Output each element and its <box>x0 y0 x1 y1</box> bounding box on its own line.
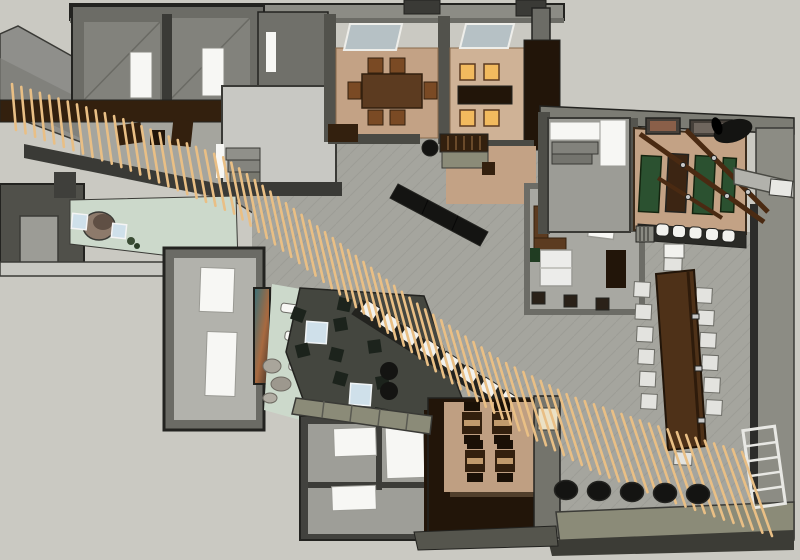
metal-clamp <box>692 314 699 319</box>
drum-stool <box>588 482 611 501</box>
dining-chair <box>635 304 652 320</box>
bonsai-plant <box>127 237 135 245</box>
drum-stool <box>687 485 710 504</box>
office-stool <box>564 295 577 307</box>
bar-stool <box>672 225 685 237</box>
dining-chair <box>641 394 658 410</box>
glowing-chair <box>460 110 475 126</box>
gray-door <box>20 216 58 268</box>
round-table <box>422 140 438 156</box>
drum-stool <box>555 481 578 500</box>
bonsai-plant <box>134 243 140 249</box>
booth-table-top <box>464 420 480 426</box>
beam-node <box>725 194 730 199</box>
booth-table-top <box>467 458 483 464</box>
bar-stool <box>705 228 718 240</box>
dining-chair <box>696 288 713 304</box>
picture-art <box>650 121 676 131</box>
dining-table <box>362 74 422 108</box>
bar-ramp <box>636 226 654 242</box>
counter-step <box>552 142 598 154</box>
dining-chair <box>698 310 715 326</box>
wood-wall-band <box>0 100 258 122</box>
wall <box>438 16 450 144</box>
kitchen-counter-step <box>226 148 260 160</box>
white-counter <box>550 122 606 140</box>
bar-stool <box>722 230 735 242</box>
south-wall-cap <box>0 262 180 276</box>
booth-table <box>442 152 488 168</box>
booth-table-top <box>497 458 513 464</box>
green-bench <box>639 156 662 213</box>
tatami-booth <box>495 440 515 482</box>
glass-seat <box>71 213 87 229</box>
white-door <box>130 52 152 98</box>
wall <box>324 14 336 142</box>
bar-stool <box>656 224 669 236</box>
dark-cabinet <box>606 250 626 288</box>
dining-chair <box>634 282 651 298</box>
drum-stool <box>654 484 677 503</box>
white-fixture <box>334 427 377 456</box>
bridge-cap <box>769 179 793 197</box>
booth-table-top <box>494 420 510 426</box>
restroom-divider <box>376 424 382 490</box>
tatami-booth <box>465 440 485 482</box>
glowing-chair <box>460 64 475 80</box>
floorplan-canvas <box>0 0 800 560</box>
round-table <box>380 382 398 400</box>
beam-node <box>746 190 751 195</box>
glass-table <box>349 383 371 405</box>
head-chair <box>664 244 684 258</box>
dining-table <box>458 86 512 104</box>
beam-node <box>681 163 686 168</box>
beam-node <box>712 156 717 161</box>
dining-chair <box>702 355 719 371</box>
green-cushion <box>530 248 540 262</box>
booth-chair <box>464 402 480 411</box>
dining-chair <box>390 110 405 125</box>
dining-chair <box>700 332 717 348</box>
white-panel <box>199 267 235 312</box>
metal-clamp <box>698 418 705 423</box>
booth-chair <box>497 473 513 482</box>
white-counter <box>600 120 626 166</box>
skylight <box>344 24 402 50</box>
white-panel <box>205 331 237 396</box>
tatami-booth <box>462 402 482 444</box>
garden-rock <box>263 359 281 373</box>
dining-chair <box>706 400 723 416</box>
wall-pillar <box>54 172 76 198</box>
glowing-chair <box>484 110 499 126</box>
garden-rock <box>271 377 291 391</box>
lounge-chair <box>333 317 348 332</box>
booth-chair <box>497 440 513 449</box>
round-table <box>380 362 398 380</box>
counter-step <box>552 154 592 164</box>
reception-desk-top <box>93 214 113 230</box>
lounge-chair <box>367 339 382 354</box>
dining-chair <box>390 58 405 73</box>
wood-stool <box>171 119 194 147</box>
metal-clamp <box>695 366 702 371</box>
office-stool <box>596 298 609 310</box>
white-fixture <box>332 485 377 511</box>
dining-chair <box>424 82 437 99</box>
head-chair <box>664 258 682 272</box>
white-fixture <box>385 425 425 478</box>
glowing-chair <box>484 64 499 80</box>
skylight <box>460 24 514 48</box>
tatami-room <box>428 396 560 540</box>
dining-chair <box>639 371 656 387</box>
dining-chair <box>636 326 653 342</box>
dining-chair <box>348 82 361 99</box>
booth-chair <box>467 440 483 449</box>
office-stool <box>532 292 545 304</box>
dining-chair <box>368 58 383 73</box>
drum-stool <box>621 483 644 502</box>
white-door <box>202 48 224 96</box>
dining-chair <box>368 110 383 125</box>
service-cabinet <box>328 124 358 142</box>
dining-chair <box>704 377 721 393</box>
booth-seat <box>482 162 495 175</box>
pantry <box>548 118 630 232</box>
white-door <box>266 32 276 72</box>
bar-stool <box>689 227 702 239</box>
lounge-chair <box>337 297 352 312</box>
glass-table <box>305 321 327 343</box>
floorplan-render <box>0 0 800 560</box>
garden-rock <box>263 393 277 403</box>
room-divider-wall <box>162 14 172 110</box>
tatami-ledge <box>450 492 538 497</box>
dining-chair <box>638 349 655 365</box>
booth-chair <box>467 473 483 482</box>
glass-seat <box>111 223 126 238</box>
roof-block <box>404 0 440 14</box>
tatami-booth <box>492 402 512 444</box>
beam-node <box>686 195 691 200</box>
